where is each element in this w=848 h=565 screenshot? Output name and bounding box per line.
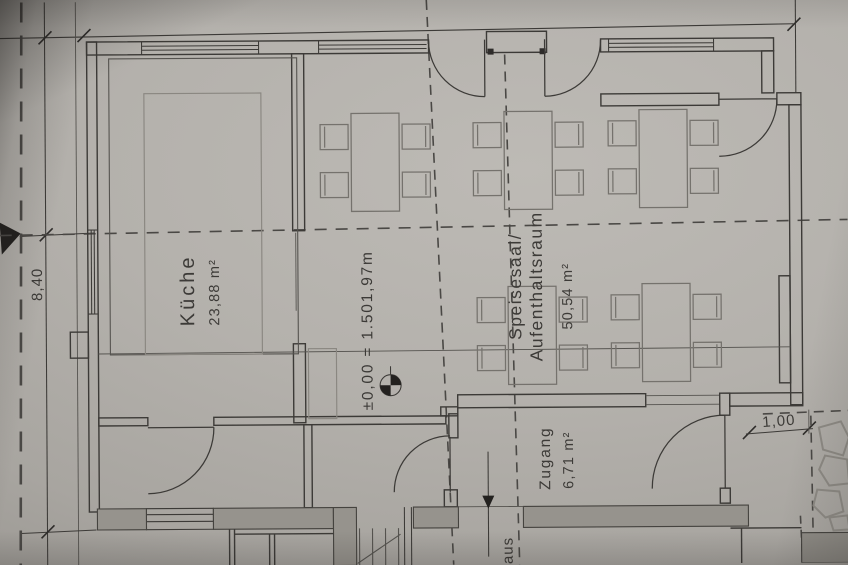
entrance-area-label: 6,71 m² [561,431,577,489]
table [642,283,691,381]
entrance-arrow-icon [482,452,495,557]
floorplan-photo: Küche 23,88 m² ±0,00 = 1.501,97m Speises… [0,0,848,565]
level-marker-icon [380,366,401,396]
dining-label-line1: Speisesaal/ [505,233,526,340]
table [351,113,400,211]
stairs [358,528,401,565]
dimension-left-label: 8,40 [29,268,46,301]
entrance-label: Zugang [537,427,554,490]
kitchen-area-label: 23,88 m² [207,259,223,326]
level-annotation: ±0,00 = 1.501,97m [359,250,377,410]
door-lower-left [148,427,214,493]
kitchen-fixtures [109,58,337,420]
door-top-right [545,39,601,96]
dashed-axes [0,0,848,565]
dimension-opening-label: 1,00 [762,412,796,431]
table [504,111,553,209]
stone-paving [813,421,848,530]
dimension-lines [0,0,817,565]
table [639,109,688,207]
gray-walls [97,504,848,565]
dining-label-line2: Aufenthaltsraum [526,211,547,361]
dimension-ticks [38,18,816,539]
partial-word-label: aus [500,537,517,564]
door-dining-east [719,99,777,156]
boundary-marker-icon [0,222,21,254]
door-top-left [429,40,485,97]
door-zugang-west [394,436,450,492]
dining-area-label: 50,54 m² [560,263,576,330]
door-zugang-east [652,415,725,488]
floorplan-drawing: Küche 23,88 m² ±0,00 = 1.501,97m Speises… [0,0,848,565]
kitchen-label: Küche [177,255,199,327]
